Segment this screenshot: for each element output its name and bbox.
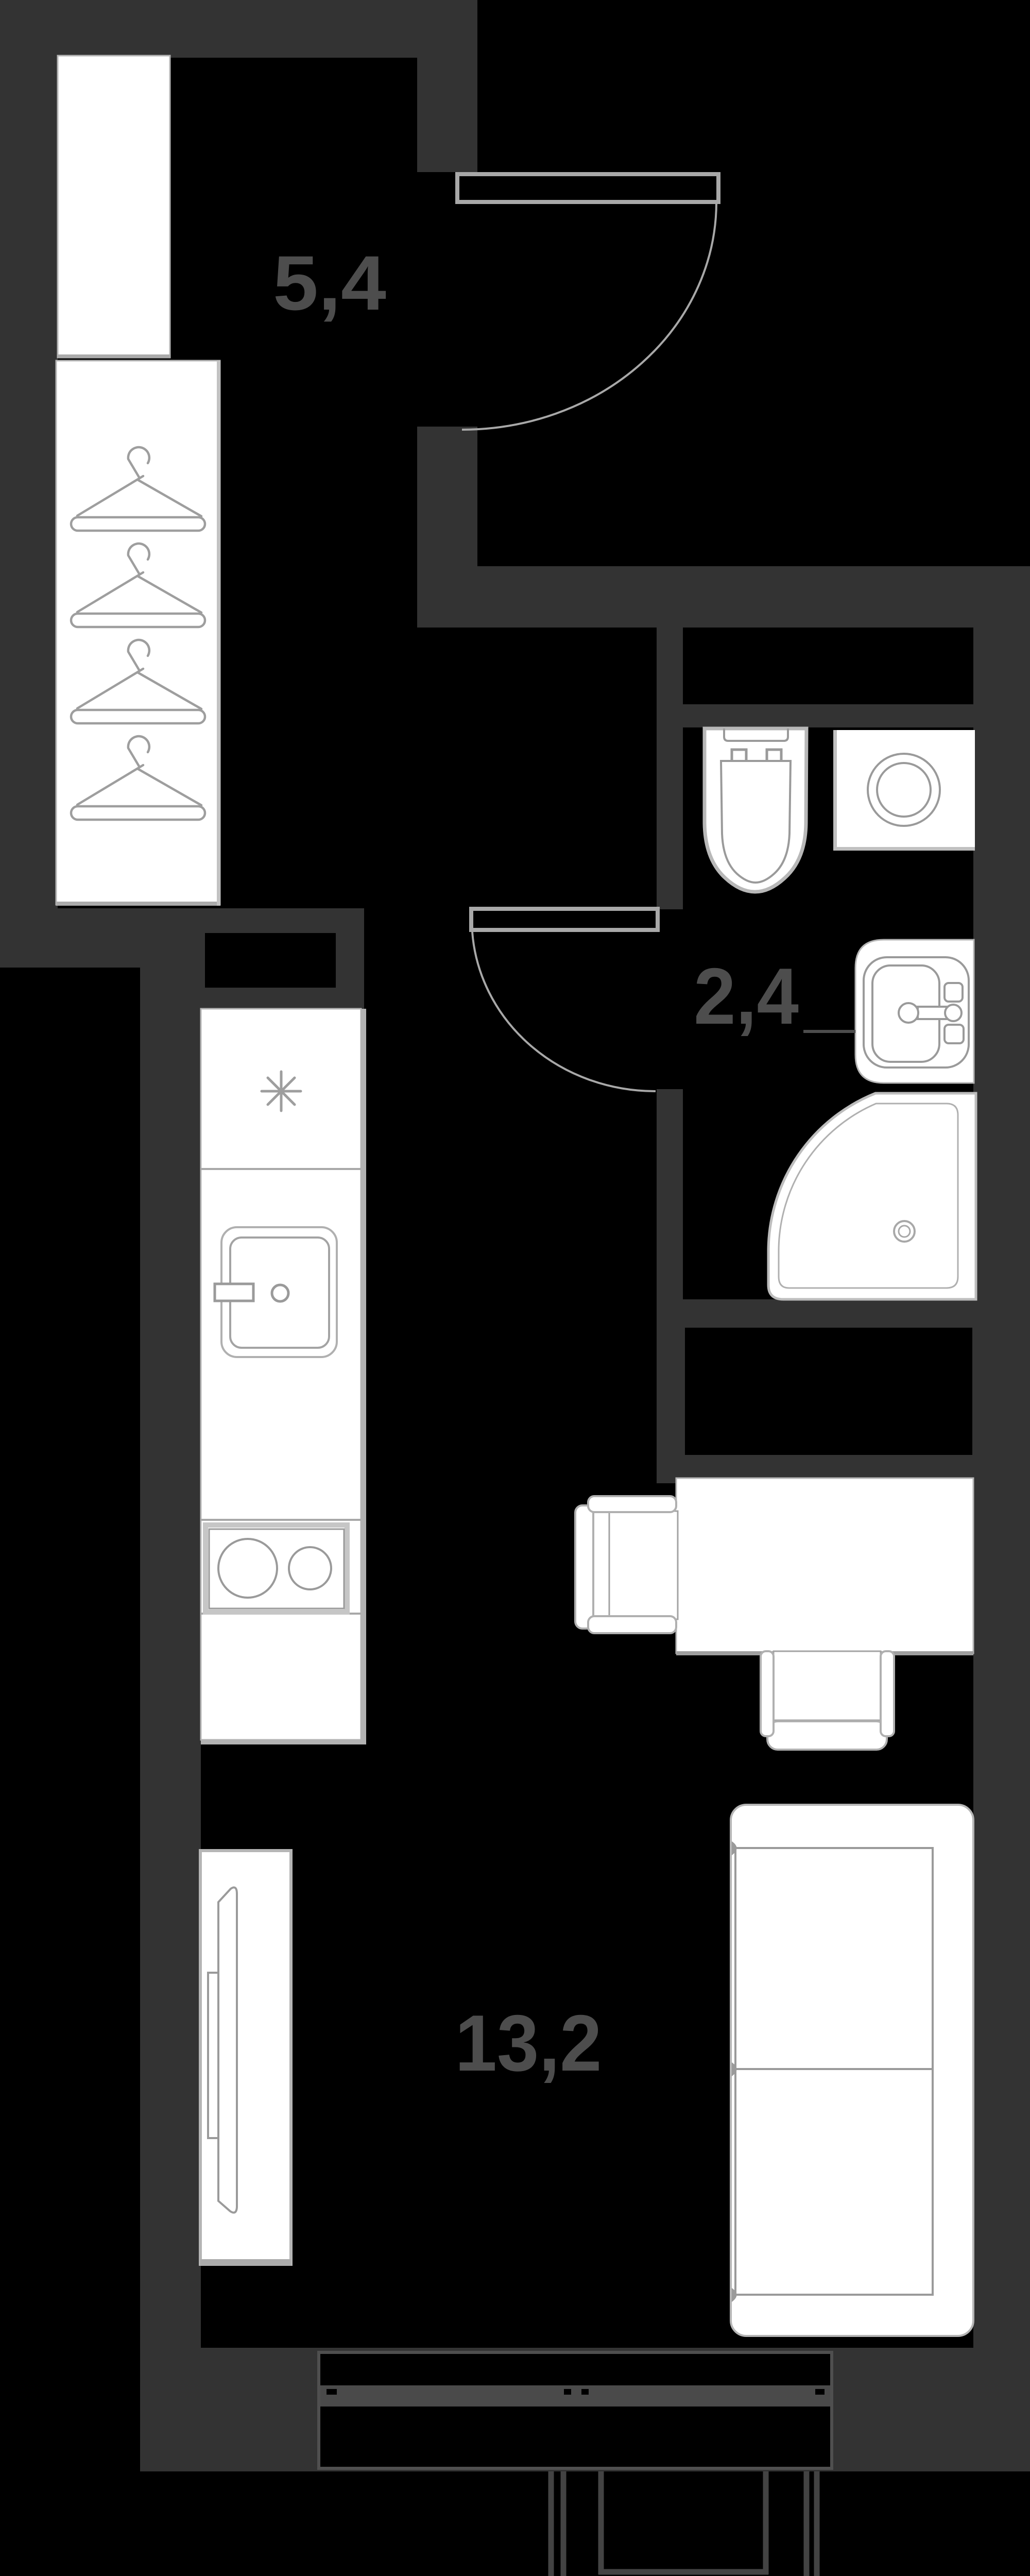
svg-text:2,4: 2,4 <box>694 952 799 1041</box>
svg-text:5,4: 5,4 <box>273 240 386 326</box>
svg-text:13,2: 13,2 <box>455 1998 602 2088</box>
